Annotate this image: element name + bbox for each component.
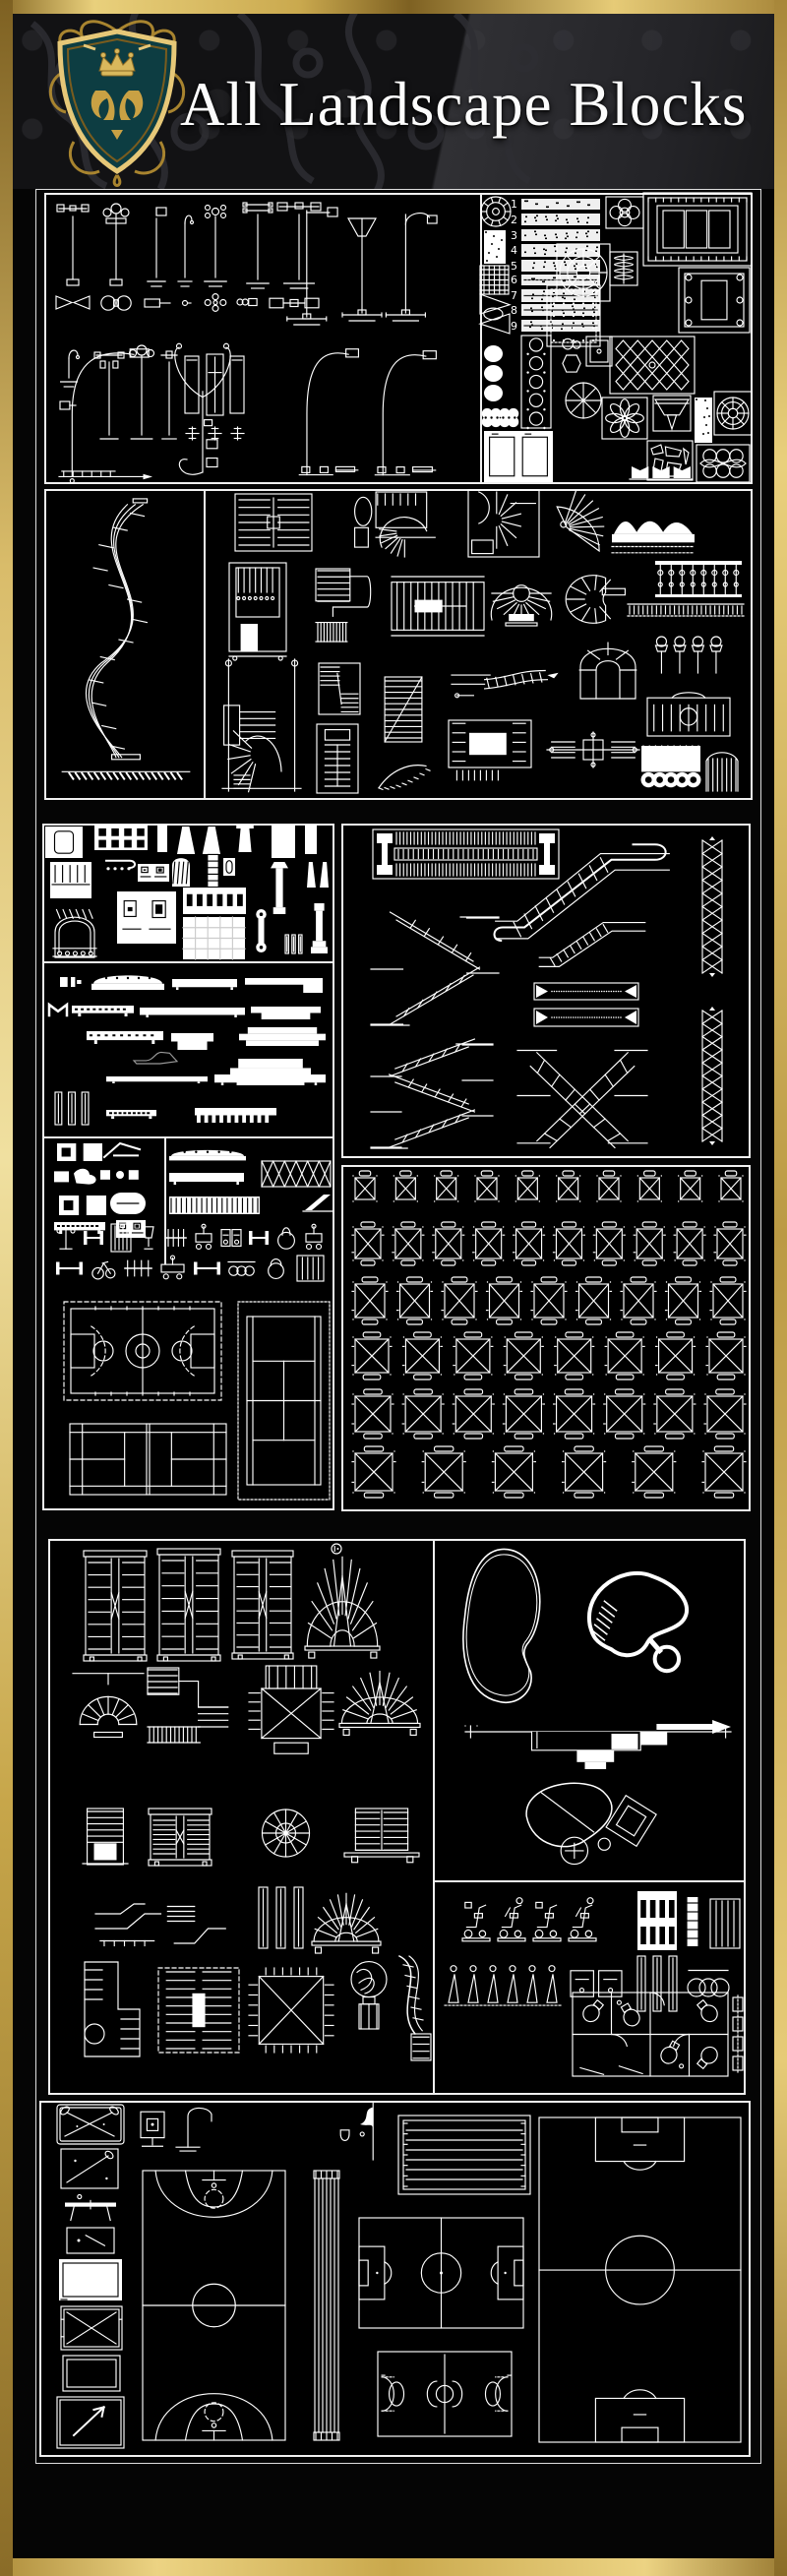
- gold-frame-left: [0, 0, 13, 2576]
- header: All Landscape Blocks: [13, 14, 774, 189]
- landscape-blocks-promo: All Landscape Blocks 123456789: [0, 0, 787, 2576]
- gold-frame-bottom: [0, 2558, 787, 2576]
- gold-frame-top: [0, 0, 787, 14]
- page-title: All Landscape Blocks: [180, 69, 731, 141]
- gold-frame-right: [774, 0, 787, 2576]
- drawing-canvas: 123456789: [0, 0, 787, 2576]
- royal-crest-logo: [38, 14, 196, 197]
- content-outer-border: [35, 189, 761, 2464]
